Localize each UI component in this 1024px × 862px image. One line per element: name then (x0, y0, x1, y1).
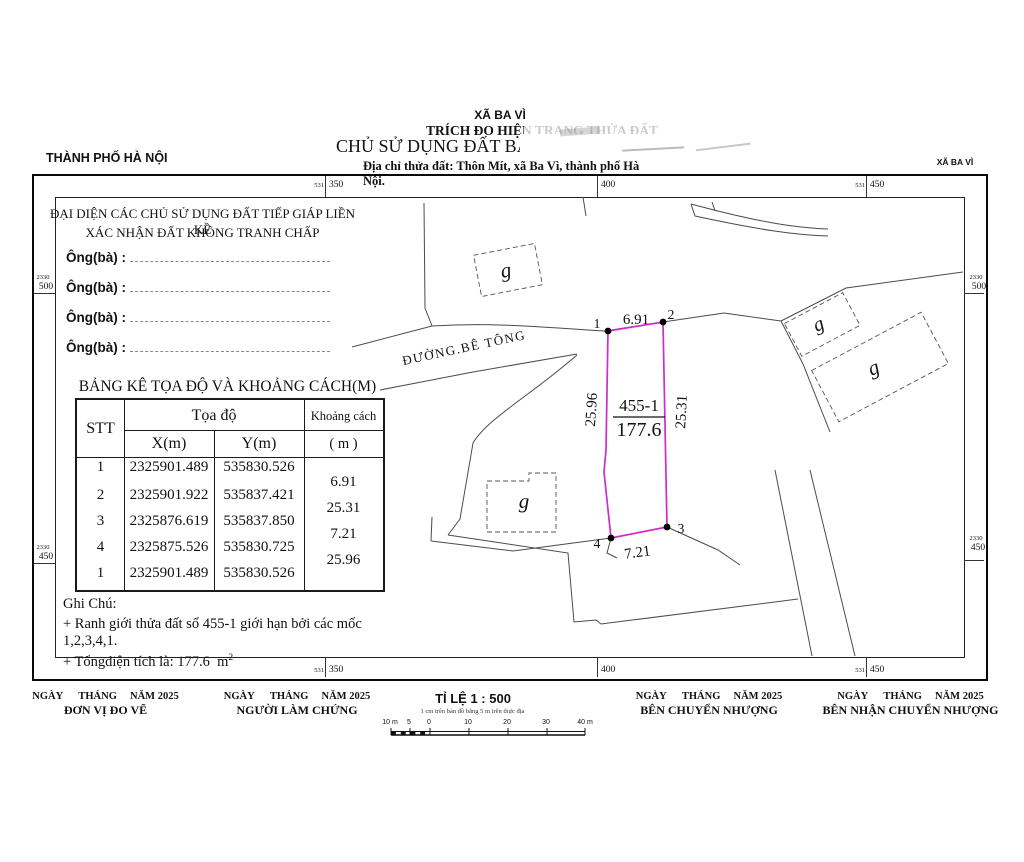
map-scale-title: TỈ LỆ 1 : 500 (408, 691, 538, 706)
table-cell-x: 2325901.922 (124, 487, 214, 504)
parcel-id-label: 455-1 (619, 396, 659, 415)
province-label: THÀNH PHỐ HÀ NỘI (46, 151, 236, 165)
scale-tick-label: 40 m (572, 719, 598, 726)
cadastral-survey-document: THÀNH PHỐ HÀ NỘI XÃ BA VÌ TRÍCH ĐO HIỆN … (0, 0, 1024, 862)
owner-signature-row: Ông(bà) : (66, 338, 330, 357)
signature-block-surveyor: NGÀY THÁNG NĂM 2025 ĐƠN VỊ ĐO VẼ (28, 691, 183, 718)
table-cell-x: 2325901.489 (124, 459, 214, 476)
edge-length-bottom: 7.21 (623, 543, 651, 562)
scale-tick-label: 20 (498, 719, 516, 726)
table-cell-distance: 25.96 (304, 552, 383, 569)
grid-label: 531 (847, 667, 865, 674)
grid-tick (964, 560, 984, 561)
boundary-line (781, 321, 830, 432)
table-cell-distance: 7.21 (304, 526, 383, 543)
boundary-line (431, 538, 611, 551)
table-cell-stt: 1 (77, 459, 124, 476)
table-cell-y: 535837.850 (214, 513, 304, 530)
table-cell-y: 535830.725 (214, 539, 304, 556)
date-line: NGÀY THÁNG NĂM 2025 (28, 691, 183, 702)
role-transferor: BÊN CHUYỂN NHƯỢNG (634, 703, 784, 718)
grid-tick (597, 176, 598, 197)
grid-tick (34, 293, 55, 294)
column-header-y: Y(m) (214, 431, 304, 457)
edge-length-right: 25.31 (673, 395, 691, 430)
column-header-distance: Khoảng cách (304, 404, 383, 428)
table-cell-distance: 6.91 (304, 474, 383, 491)
notes-block: Ghi Chú: + Ranh giới thửa đất số 455-1 g… (63, 596, 403, 671)
parcel-area-label: 177.6 (617, 419, 662, 441)
scale-tick-label: 10 (459, 719, 477, 726)
table-cell-stt: 2 (77, 487, 124, 504)
building-label: g (498, 257, 513, 283)
signature-blank-line (130, 308, 330, 322)
scale-tick-label: 5 (401, 719, 417, 726)
owner-signature-row: Ông(bà) : (66, 248, 330, 267)
signature-block-transferor: NGÀY THÁNG NĂM 2025 BÊN CHUYỂN NHƯỢNG (634, 691, 784, 718)
boundary-line (431, 517, 432, 541)
grid-tick (964, 293, 984, 294)
grid-label: 2330 (966, 535, 986, 542)
side-road-edge (775, 470, 812, 656)
grid-label: 350 (329, 180, 353, 190)
scale-tick-label: 0 (421, 719, 437, 726)
coordinate-table: STT Tọa độ X(m) Y(m) Khoảng cách ( m ) 1… (75, 398, 385, 592)
signature-block-transferee: NGÀY THÁNG NĂM 2025 BÊN NHẬN CHUYỂN NHƯỢ… (818, 691, 1003, 718)
vertex-label-2: 2 (668, 307, 675, 322)
note-area-text: + Tổngdiện tích là: 177.6 (63, 654, 210, 670)
building-label: g (519, 489, 530, 513)
top-road-edge (691, 204, 828, 229)
table-cell-stt: 4 (77, 539, 124, 556)
note-boundary: + Ranh giới thửa đất số 455-1 giới hạn b… (63, 616, 403, 650)
owner-row-label: Ông(bà) : (66, 340, 126, 355)
grid-label: 450 (38, 552, 54, 562)
road-name-label: ĐƯỜNG.BÊ TÔNG (401, 327, 527, 368)
coordinate-table-title: BẢNG KÊ TỌA ĐỘ VÀ KHOẢNG CÁCH(M) (70, 378, 385, 396)
vertex-label-1: 1 (594, 316, 601, 331)
date-line: NGÀY THÁNG NĂM 2025 (222, 691, 372, 702)
table-cell-y: 535837.421 (214, 487, 304, 504)
owner-row-label: Ông(bà) : (66, 310, 126, 325)
notes-title: Ghi Chú: (63, 596, 403, 613)
role-transferee: BÊN NHẬN CHUYỂN NHƯỢNG (818, 703, 1003, 718)
survey-marker-1 (605, 328, 612, 335)
boundary-line (424, 203, 432, 326)
signature-blank-line (130, 278, 330, 292)
grid-label: 450 (870, 180, 894, 190)
vertex-label-3: 3 (678, 521, 685, 536)
owner-signature-row: Ông(bà) : (66, 278, 330, 297)
commune-right-label: XÃ BA VÌ (900, 157, 1010, 167)
grid-label: 2330 (33, 274, 53, 281)
grid-label: 450 (970, 543, 986, 553)
grid-label: 400 (601, 665, 625, 675)
edge-length-left: 25.96 (583, 392, 601, 427)
grid-label: 500 (38, 282, 54, 292)
boundary-line (583, 197, 586, 216)
grid-label: 531 (306, 182, 324, 189)
signature-blank-line (130, 248, 330, 262)
buildings (474, 243, 949, 532)
building-label: g (864, 354, 883, 380)
note-area: + Tổngdiện tích là: 177.6 m2 (63, 653, 403, 671)
table-cell-x: 2325875.526 (124, 539, 214, 556)
date-line: NGÀY THÁNG NĂM 2025 (818, 691, 1003, 702)
grid-tick (866, 657, 867, 677)
grid-tick (866, 176, 867, 197)
map-scale-subtitle: 1 cm trên bản đồ bằng 5 m trên thực địa (395, 708, 550, 715)
table-cell-stt: 3 (77, 513, 124, 530)
scale-tick-label: 30 (537, 719, 555, 726)
role-witness: NGƯỜI LÀM CHỨNG (222, 703, 372, 718)
boundary-line (724, 272, 963, 321)
note-area-sup: 2 (228, 653, 233, 663)
survey-marker-4 (608, 535, 615, 542)
owner-row-label: Ông(bà) : (66, 280, 126, 295)
column-header-distance-unit: ( m ) (304, 431, 383, 457)
signature-block-witness: NGÀY THÁNG NĂM 2025 NGƯỜI LÀM CHỨNG (222, 691, 372, 718)
note-area-unit: m (217, 654, 228, 670)
building-label: g (810, 312, 828, 336)
table-grid-line (77, 457, 383, 458)
signature-blank-line (130, 338, 330, 352)
vertex-label-4: 4 (594, 536, 601, 551)
table-cell-y: 535830.526 (214, 565, 304, 582)
grid-label: 2330 (33, 544, 53, 551)
grid-label: 450 (870, 665, 894, 675)
survey-marker-3 (664, 524, 671, 531)
grid-tick (597, 657, 598, 677)
confirmation-title-line2: XÁC NHẬN ĐẤT KHÔNG TRANH CHẤP (45, 225, 360, 241)
table-cell-stt: 1 (77, 565, 124, 582)
scale-bar (383, 728, 598, 742)
scale-tick-label: 10 m (377, 719, 403, 726)
survey-marker-2 (660, 319, 667, 326)
grid-label: 2330 (966, 274, 986, 281)
owner-signature-row: Ông(bà) : (66, 308, 330, 327)
column-header-stt: STT (77, 400, 124, 457)
building-outline (812, 312, 949, 421)
table-cell-distance: 25.31 (304, 500, 383, 517)
table-cell-x: 2325876.619 (124, 513, 214, 530)
grid-tick (325, 176, 326, 197)
table-cell-x: 2325901.489 (124, 565, 214, 582)
role-surveyor: ĐƠN VỊ ĐO VẼ (28, 703, 183, 718)
grid-tick (34, 563, 55, 564)
grid-label: 531 (847, 182, 865, 189)
edge-length-top: 6.91 (623, 312, 649, 328)
column-header-toado: Tọa độ (124, 402, 304, 430)
side-road-edge (810, 470, 855, 656)
column-header-x: X(m) (124, 431, 214, 457)
grid-label: 400 (601, 180, 625, 190)
owner-row-label: Ông(bà) : (66, 250, 126, 265)
date-line: NGÀY THÁNG NĂM 2025 (634, 691, 784, 702)
grid-label: 500 (971, 282, 987, 292)
boundary-line (448, 355, 577, 535)
table-cell-y: 535830.526 (214, 459, 304, 476)
